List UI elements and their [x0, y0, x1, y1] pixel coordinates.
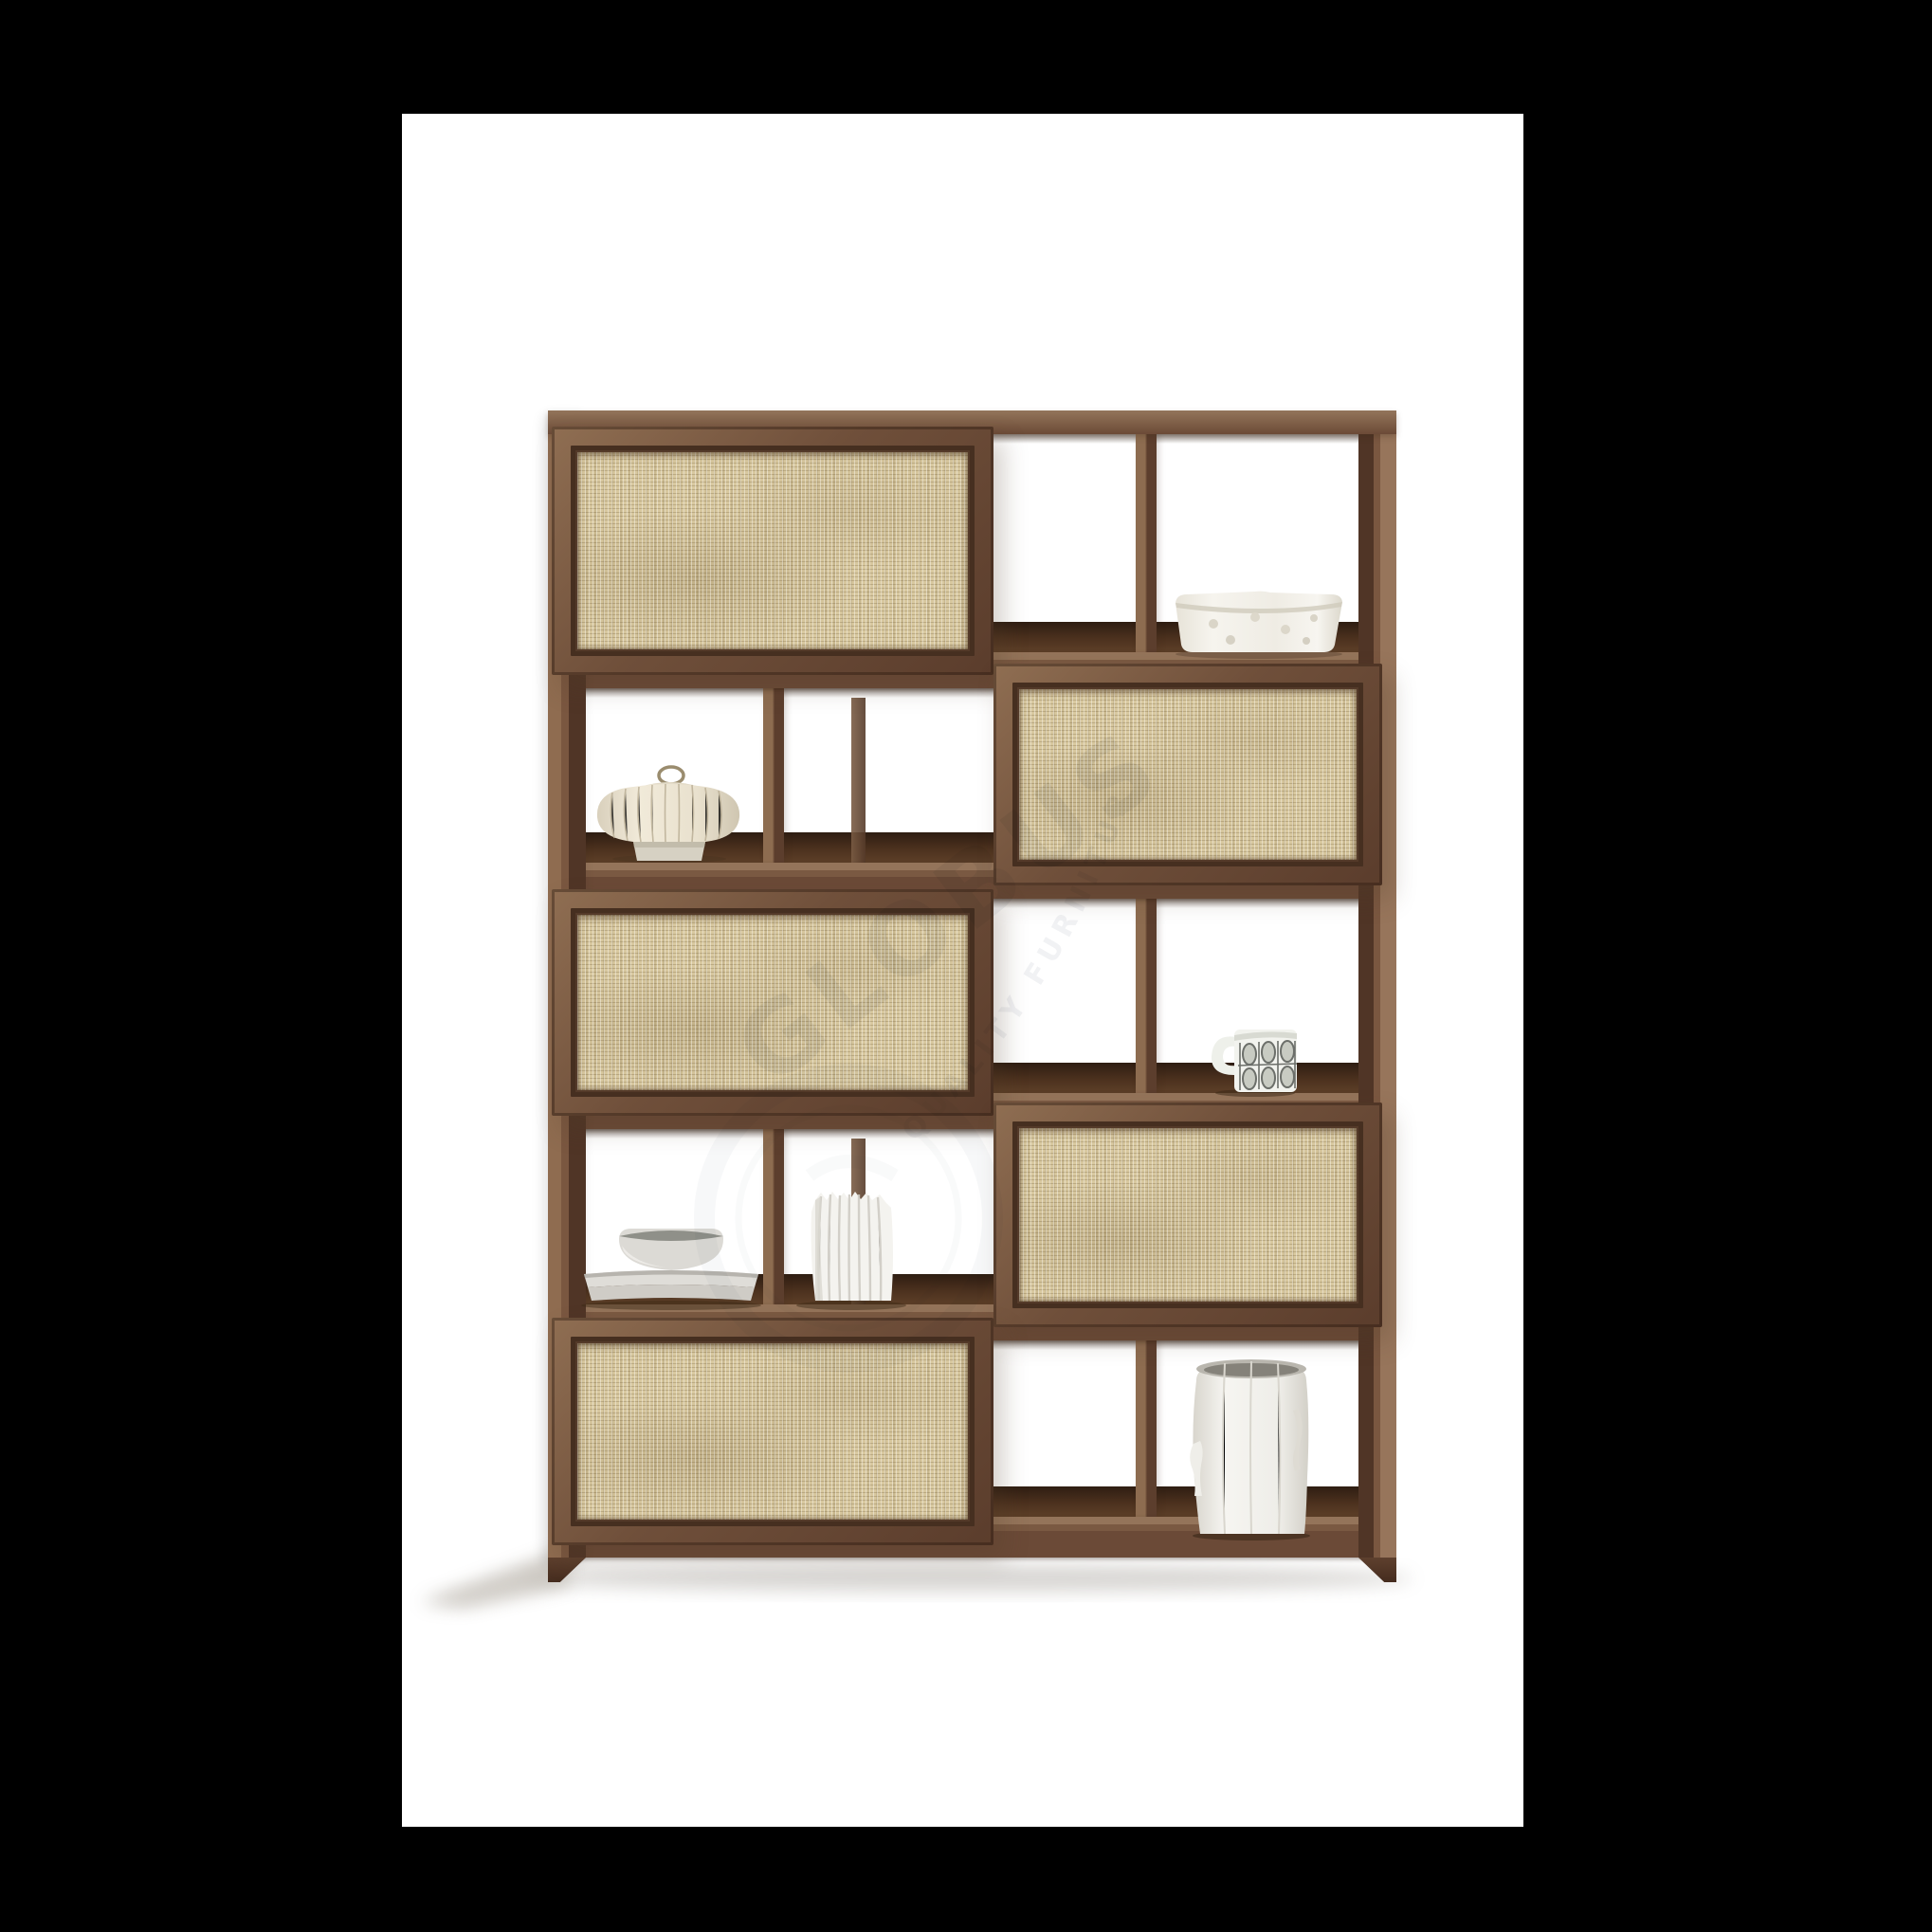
sliding-door-row1-left [552, 427, 993, 675]
row3-divider [1136, 899, 1157, 1093]
trunk-vase [1179, 1354, 1323, 1543]
cane-panel [577, 452, 968, 649]
sliding-door-row3-left [552, 889, 993, 1116]
sliding-door-row2-right [993, 664, 1382, 885]
cane-panel [577, 915, 968, 1090]
letterboxed-product-photo: { "scene": { "kind": "furniture product … [0, 0, 1932, 1932]
row5-divider [1136, 1340, 1157, 1517]
patterned-mug [1200, 1020, 1304, 1098]
dotted-planter-bowl [1164, 586, 1354, 660]
cane-panel [577, 1343, 968, 1520]
bowl-plates-and-ribbed-vase [567, 1179, 937, 1312]
cane-panel [1019, 689, 1357, 860]
row1-divider [1136, 434, 1157, 652]
sliding-door-row4-right [993, 1103, 1382, 1327]
cane-panel [1019, 1128, 1357, 1302]
row2-divider [763, 688, 784, 863]
foot-right [1358, 1558, 1396, 1582]
sliding-door-row5-left [552, 1318, 993, 1545]
side-panel-right [1358, 410, 1396, 1558]
row2-back-divider [851, 698, 866, 863]
foot-left [548, 1558, 586, 1582]
pleated-lidded-jar [584, 758, 755, 865]
shelf-unit: GLOBUS QUALITY FURNITURE FROM [0, 0, 1932, 1932]
